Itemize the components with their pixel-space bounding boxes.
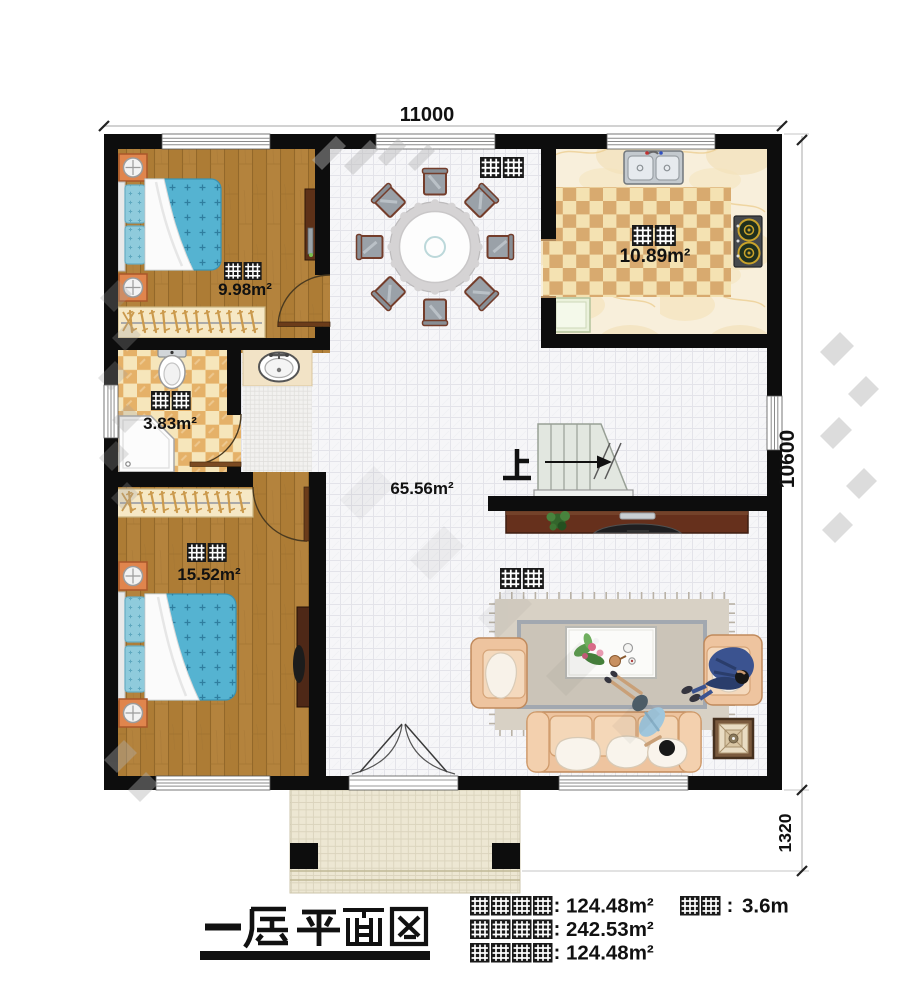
svg-text:15.52m²: 15.52m² <box>177 565 241 584</box>
svg-text:124.48m²: 124.48m² <box>566 895 654 918</box>
svg-text:124.48m²: 124.48m² <box>566 942 654 965</box>
svg-text::: : <box>554 942 561 964</box>
svg-text::: : <box>727 895 734 917</box>
svg-text:11000: 11000 <box>400 104 455 126</box>
svg-text:3.83m²: 3.83m² <box>143 414 197 433</box>
svg-text::: : <box>554 919 561 941</box>
svg-text:10600: 10600 <box>776 430 799 488</box>
svg-text::: : <box>554 895 561 917</box>
svg-text:3.6m: 3.6m <box>742 895 789 918</box>
svg-text:1320: 1320 <box>775 813 795 852</box>
svg-text:242.53m²: 242.53m² <box>566 918 654 941</box>
svg-text:9.98m²: 9.98m² <box>218 280 272 299</box>
svg-text:10.89m²: 10.89m² <box>620 246 691 267</box>
svg-text:65.56m²: 65.56m² <box>390 479 454 498</box>
